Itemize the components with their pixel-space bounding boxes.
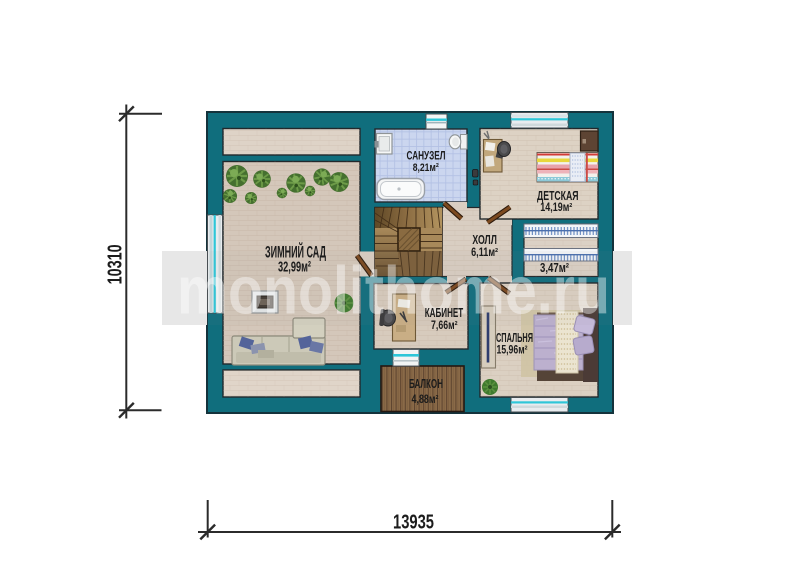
svg-text:4,88м²: 4,88м² <box>412 394 439 406</box>
svg-text:6,11м²: 6,11м² <box>471 247 498 259</box>
svg-text:КАБИНЕТ: КАБИНЕТ <box>425 306 464 320</box>
svg-text:8,21м²: 8,21м² <box>413 162 439 174</box>
svg-text:ДЕТСКАЯ: ДЕТСКАЯ <box>537 188 579 203</box>
svg-text:3,47м²: 3,47м² <box>540 261 569 275</box>
svg-text:10310: 10310 <box>104 244 127 284</box>
svg-text:САНУЗЕЛ: САНУЗЕЛ <box>407 150 446 162</box>
svg-text:7,66м²: 7,66м² <box>431 320 458 332</box>
svg-text:14,19м²: 14,19м² <box>540 202 572 214</box>
svg-text:32,99м²: 32,99м² <box>278 258 311 275</box>
svg-text:БАЛКОН: БАЛКОН <box>409 377 443 391</box>
svg-text:15,96м²: 15,96м² <box>497 345 528 357</box>
svg-text:ХОЛЛ: ХОЛЛ <box>472 233 497 247</box>
svg-text:СПАЛЬНЯ: СПАЛЬНЯ <box>496 331 533 345</box>
svg-text:13935: 13935 <box>393 512 434 534</box>
